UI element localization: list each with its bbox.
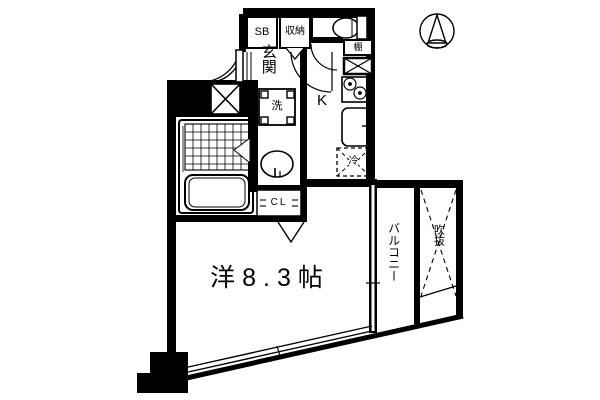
wall-diagonal [182,316,463,379]
toilet-door-swing-icon [311,44,337,70]
floorplan-canvas: SB 収納 棚 玄関 K 洗 冷 CL 洋8.3帖 バルコニー 吹抜 const… [0,0,600,400]
wash-basin-icon [261,151,293,177]
wall-hall-left [239,14,246,52]
toilet-icon [333,16,367,39]
storage-label: 収納 [280,17,310,48]
wall-step-foot [137,373,188,393]
window-sash-2 [186,326,372,368]
kitchen-hatch-box-icon [344,58,372,74]
void-floor-edge [420,286,456,297]
front-door-swing-icon [201,42,243,82]
pipe-shaft-icon [211,84,240,114]
kitchen-door-swing-icon [291,52,332,92]
kitchen-label: K [317,93,327,109]
diagonal-window-wall [182,286,463,379]
window-room-balcony [372,185,375,331]
wall-toilet-bottom [307,37,343,43]
closet-label: CL [257,190,301,216]
bathroom-unit [179,120,253,213]
stove-icon [342,77,370,102]
bathroom-door-icon [234,138,250,163]
void-label: 吹抜 [432,224,444,254]
main-room-label: 洋8.3帖 [170,260,370,296]
washing-machine-label: 洗 [259,89,295,125]
balcony-label: バルコニー [387,222,400,302]
wall-kitchen-bottom [300,179,377,187]
room-door-icon [278,222,304,242]
bathroom-outline [179,120,253,213]
compass-north-icon [420,14,454,48]
entrance-step-lines [247,52,251,82]
bathtub-icon [185,175,249,210]
shelf-label: 棚 [344,40,372,55]
refrigerator-label: 冷 [337,148,370,176]
wall-balcony-top [375,180,463,188]
wall-void-right [456,180,463,318]
wall-balcony-void [414,187,420,324]
entrance-label: 玄関 [260,44,276,74]
